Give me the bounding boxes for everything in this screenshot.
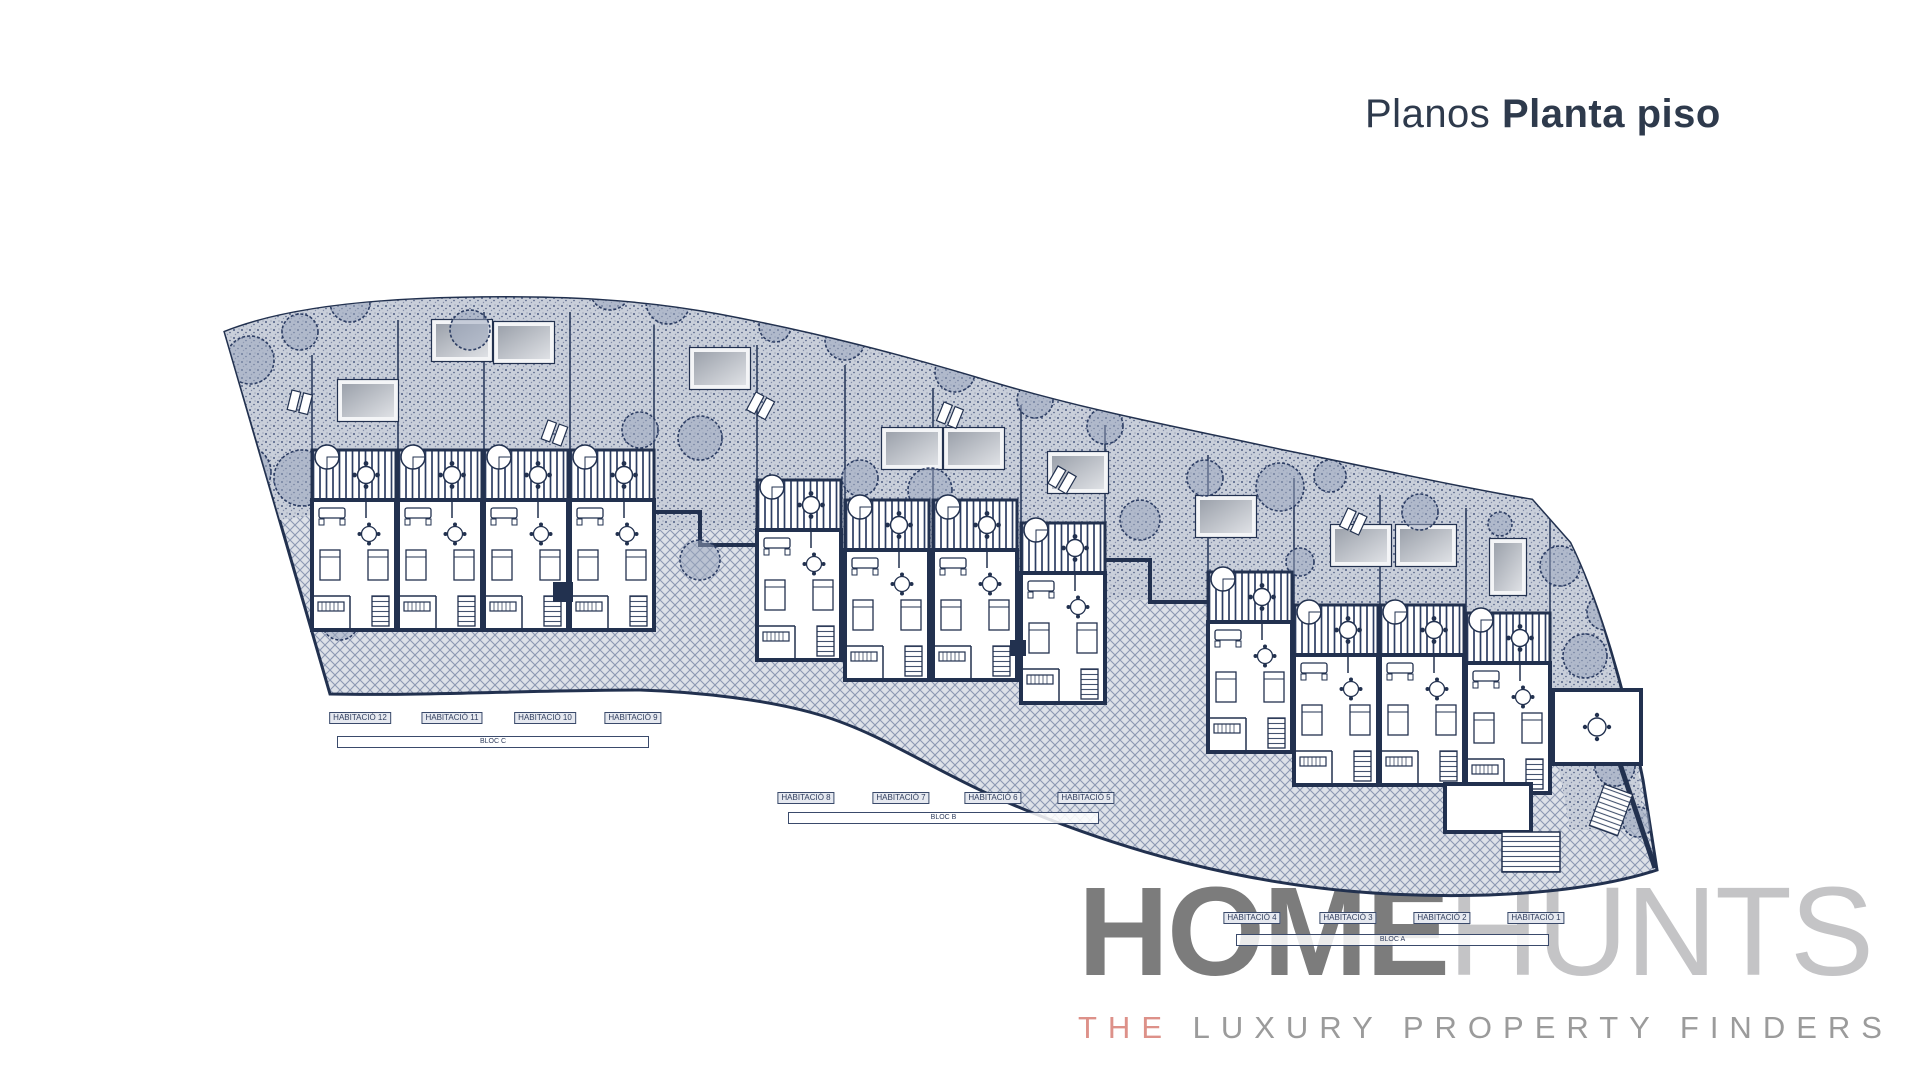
unit-label: HABITACIÓ 2 [1413, 912, 1470, 924]
page-title-light: Planos [1365, 92, 1490, 136]
page-title: Planos Planta piso [1365, 92, 1721, 137]
unit-label: HABITACIÓ 12 [329, 712, 391, 724]
bloc-c-units [312, 445, 654, 630]
unit-label: HABITACIÓ 7 [872, 792, 929, 804]
brochure-page: HOMEHUNTS THE LUXURY PROPERTY FINDERS [0, 0, 1920, 1080]
shaft [1010, 640, 1026, 656]
unit-label: HABITACIÓ 1 [1507, 912, 1564, 924]
floor-plan-drawing [0, 0, 1920, 1080]
bloc-bar-b: BLOC B [788, 812, 1099, 824]
bloc-bar-a: BLOC A [1236, 934, 1549, 946]
bloc-bar-c: BLOC C [337, 736, 649, 748]
page-title-bold: Planta piso [1502, 92, 1721, 136]
unit-label: HABITACIÓ 10 [514, 712, 576, 724]
unit-label: HABITACIÓ 3 [1319, 912, 1376, 924]
unit-label: HABITACIÓ 8 [777, 792, 834, 804]
unit-label: HABITACIÓ 5 [1057, 792, 1114, 804]
unit-label: HABITACIÓ 9 [604, 712, 661, 724]
unit-label: HABITACIÓ 6 [964, 792, 1021, 804]
unit-label: HABITACIÓ 4 [1223, 912, 1280, 924]
unit-label: HABITACIÓ 11 [421, 712, 482, 724]
shaft [553, 582, 573, 602]
